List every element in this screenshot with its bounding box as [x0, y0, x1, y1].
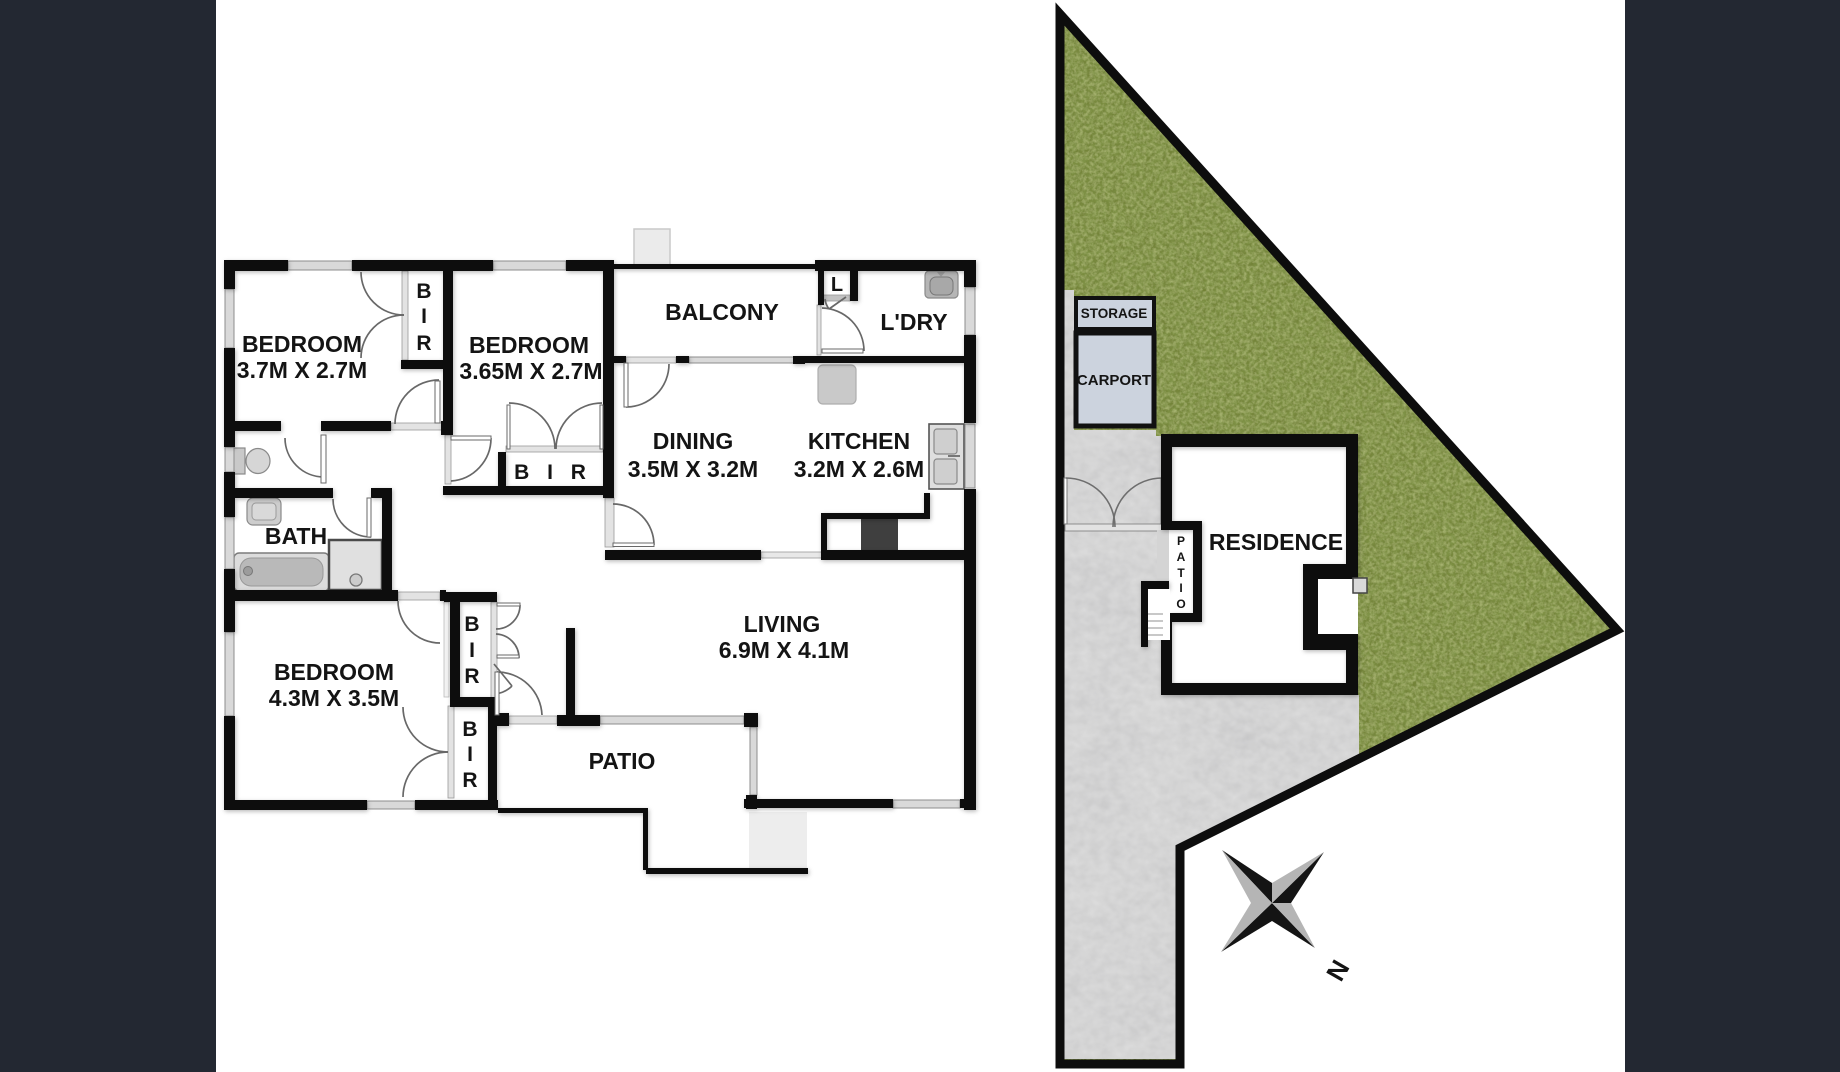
svg-text:3.2M X 2.6M: 3.2M X 2.6M: [794, 456, 924, 482]
svg-text:L: L: [831, 274, 843, 296]
svg-text:RESIDENCE: RESIDENCE: [1209, 529, 1343, 555]
svg-text:4.3M X 3.5M: 4.3M X 3.5M: [269, 685, 399, 711]
svg-text:L'DRY: L'DRY: [880, 309, 947, 335]
svg-text:R: R: [416, 332, 431, 355]
svg-text:B: B: [464, 613, 479, 636]
svg-text:3.5M X 3.2M: 3.5M X 3.2M: [628, 456, 758, 482]
svg-text:BEDROOM: BEDROOM: [469, 332, 589, 358]
svg-text:BEDROOM: BEDROOM: [274, 659, 394, 685]
svg-text:CARPORT: CARPORT: [1077, 372, 1151, 389]
svg-text:B: B: [462, 718, 477, 741]
svg-text:STORAGE: STORAGE: [1081, 306, 1148, 321]
svg-text:6.9M X 4.1M: 6.9M X 4.1M: [719, 637, 849, 663]
svg-text:KITCHEN: KITCHEN: [808, 428, 910, 454]
svg-text:P: P: [1177, 534, 1185, 548]
svg-text:A: A: [1177, 550, 1186, 564]
svg-text:PATIO: PATIO: [589, 748, 656, 774]
svg-text:I: I: [467, 743, 473, 766]
svg-text:BATH: BATH: [265, 523, 327, 549]
svg-text:R: R: [462, 769, 477, 792]
svg-text:I: I: [469, 639, 475, 662]
svg-text:BALCONY: BALCONY: [665, 299, 779, 325]
svg-text:I: I: [1179, 581, 1182, 595]
svg-text:3.65M X 2.7M: 3.65M X 2.7M: [459, 358, 602, 384]
svg-text:T: T: [1177, 566, 1185, 580]
svg-text:O: O: [1176, 597, 1185, 611]
svg-text:B: B: [416, 280, 431, 303]
svg-text:I: I: [421, 305, 427, 328]
svg-text:3.7M X 2.7M: 3.7M X 2.7M: [237, 357, 367, 383]
svg-text:B I R: B I R: [514, 461, 592, 484]
svg-text:R: R: [464, 665, 479, 688]
svg-text:BEDROOM: BEDROOM: [242, 331, 362, 357]
svg-text:LIVING: LIVING: [744, 611, 821, 637]
svg-text:N: N: [1320, 955, 1355, 986]
svg-text:DINING: DINING: [653, 428, 734, 454]
